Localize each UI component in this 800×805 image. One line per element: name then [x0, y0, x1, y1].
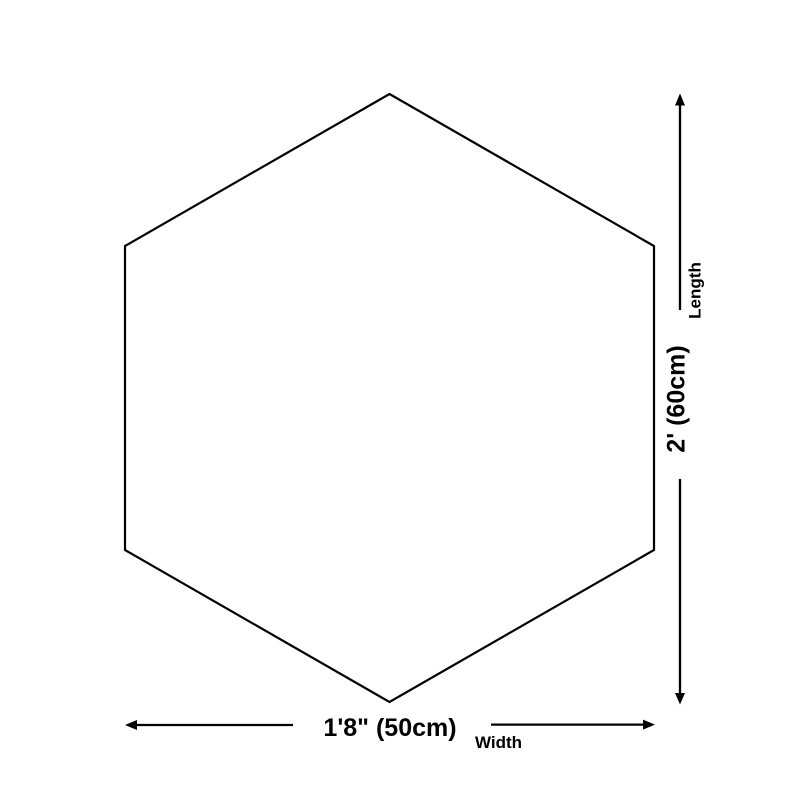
svg-text:2' (60cm): 2' (60cm) [663, 345, 691, 452]
svg-text:1'8" (50cm): 1'8" (50cm) [323, 714, 456, 742]
svg-text:Length: Length [686, 262, 705, 319]
svg-text:Width: Width [475, 733, 522, 752]
